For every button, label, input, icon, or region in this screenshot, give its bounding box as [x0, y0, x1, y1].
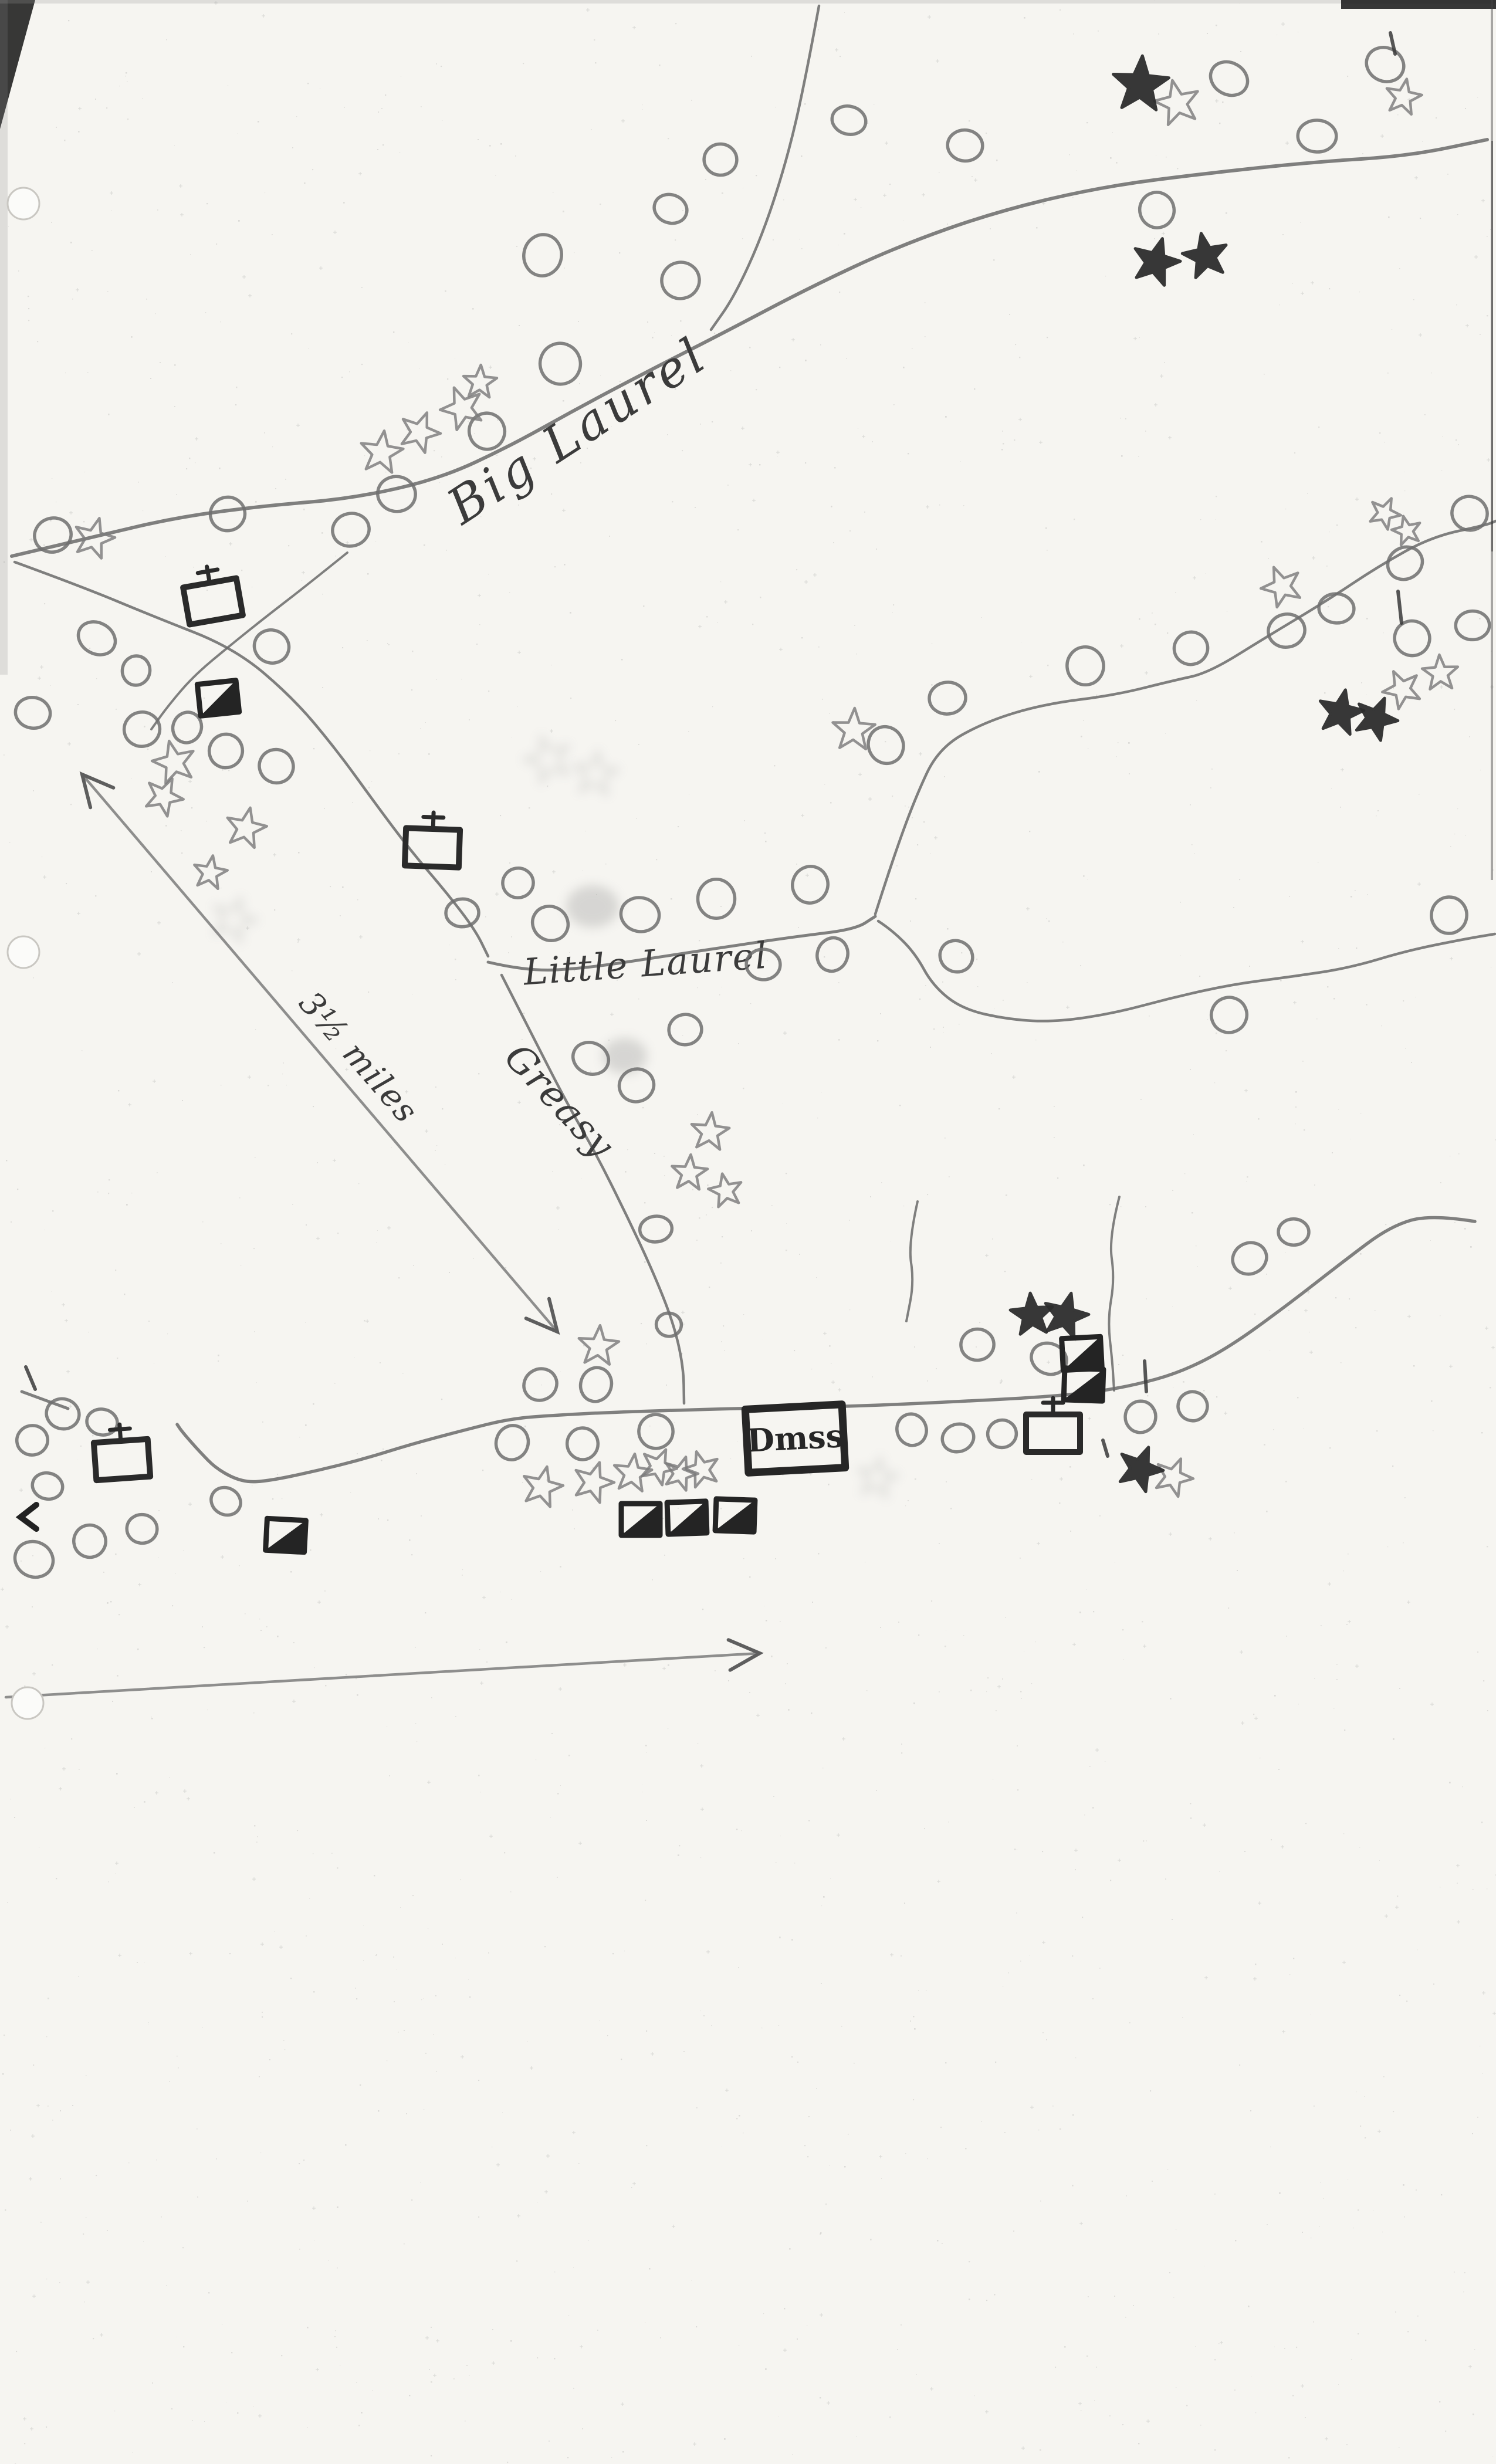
smudge-mark — [566, 885, 619, 928]
punch-hole — [8, 936, 39, 968]
right-edge-line — [1491, 141, 1493, 551]
punch-hole — [8, 188, 39, 219]
paper-background — [0, 0, 1496, 2464]
left-edge-shadow — [0, 0, 8, 675]
top-right-edge-mark — [1341, 0, 1496, 9]
top-edge-shadow — [0, 0, 1496, 4]
punch-hole — [12, 1687, 43, 1719]
map-canvas: Big LaurelLittle LaurelGreasy3½ milesDms… — [0, 0, 1496, 2464]
tick-mark — [1145, 1361, 1146, 1392]
dmss-box-label: Dmss — [746, 1417, 845, 1460]
scanned-map-page: Big LaurelLittle LaurelGreasy3½ milesDms… — [0, 0, 1496, 2464]
